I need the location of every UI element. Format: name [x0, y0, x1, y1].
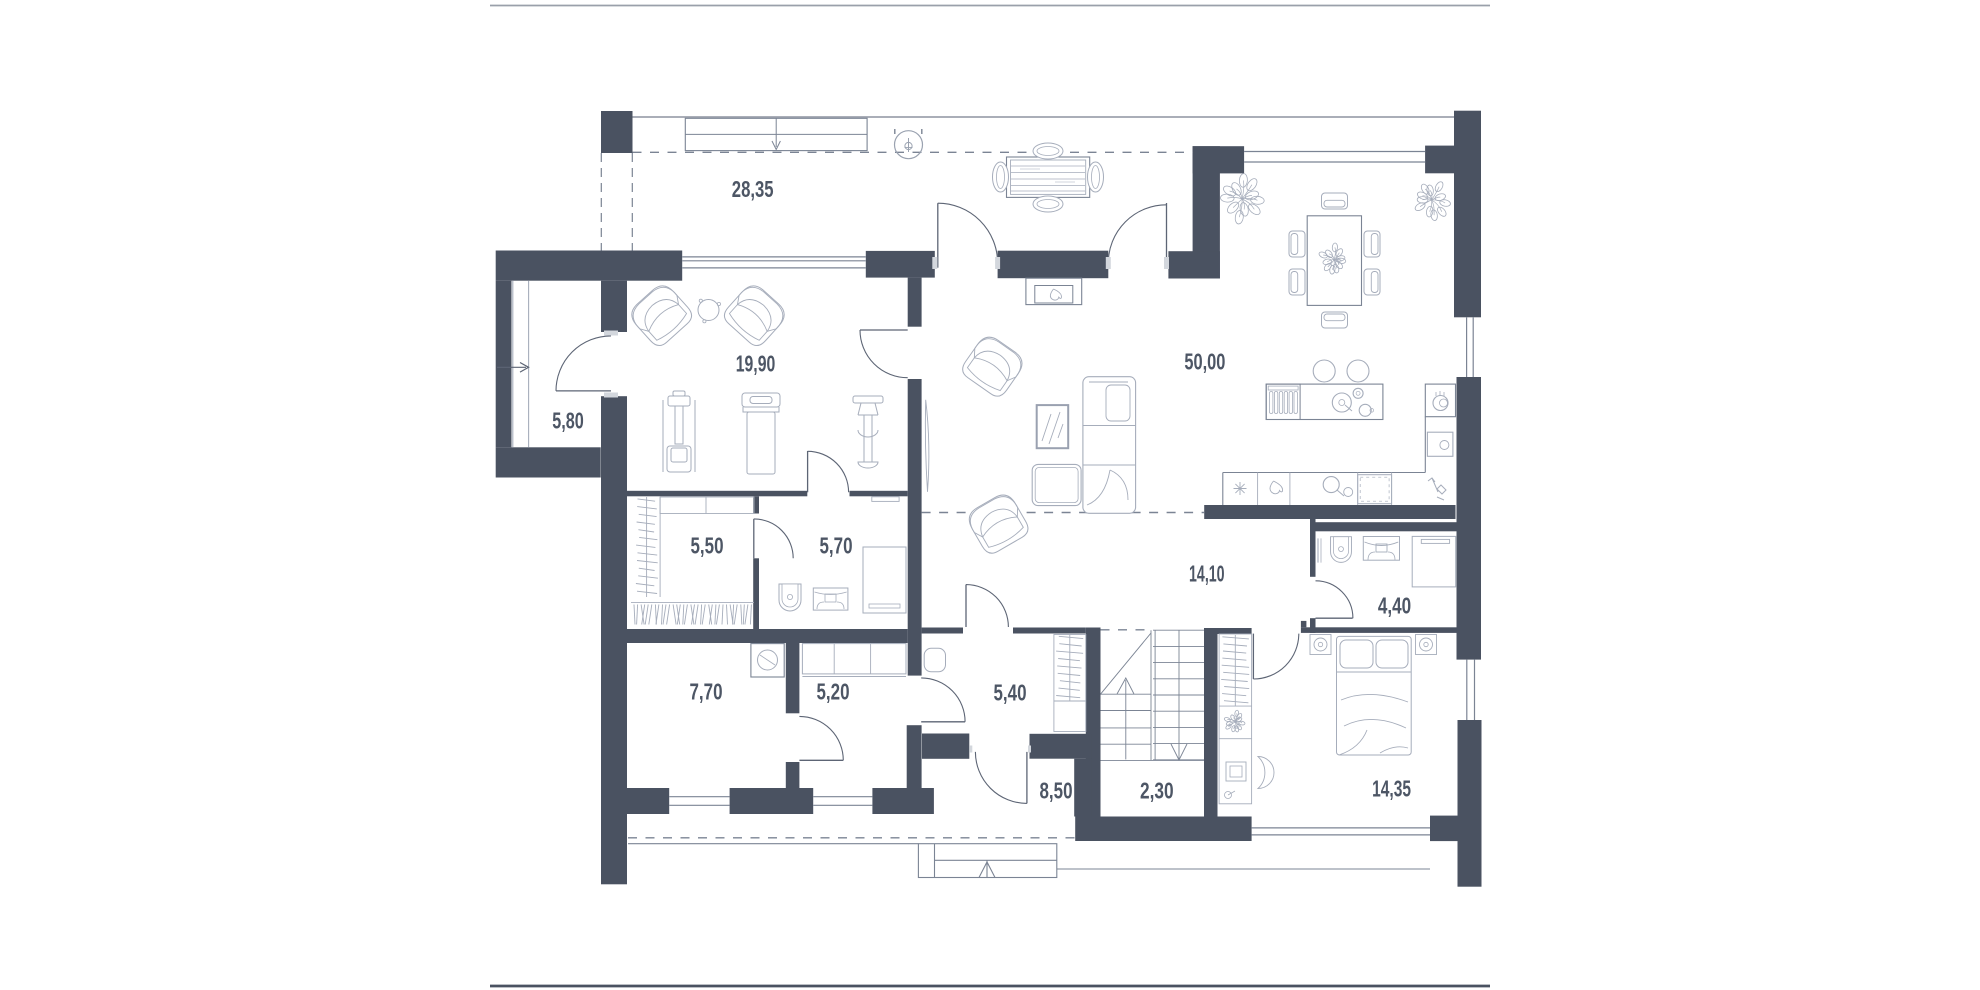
svg-text:7,70: 7,70	[690, 679, 723, 705]
svg-text:19,90: 19,90	[736, 351, 776, 377]
svg-text:14,35: 14,35	[1372, 776, 1411, 802]
svg-text:5,40: 5,40	[994, 680, 1027, 706]
svg-text:8,50: 8,50	[1040, 778, 1073, 804]
svg-text:5,70: 5,70	[820, 532, 853, 558]
svg-text:5,80: 5,80	[552, 408, 584, 434]
svg-text:14,10: 14,10	[1189, 560, 1225, 586]
svg-text:4,40: 4,40	[1378, 593, 1411, 619]
svg-text:50,00: 50,00	[1184, 349, 1225, 375]
svg-text:28,35: 28,35	[732, 176, 774, 202]
svg-text:2,30: 2,30	[1140, 777, 1174, 803]
svg-text:5,50: 5,50	[691, 532, 724, 558]
svg-text:5,20: 5,20	[817, 679, 850, 705]
